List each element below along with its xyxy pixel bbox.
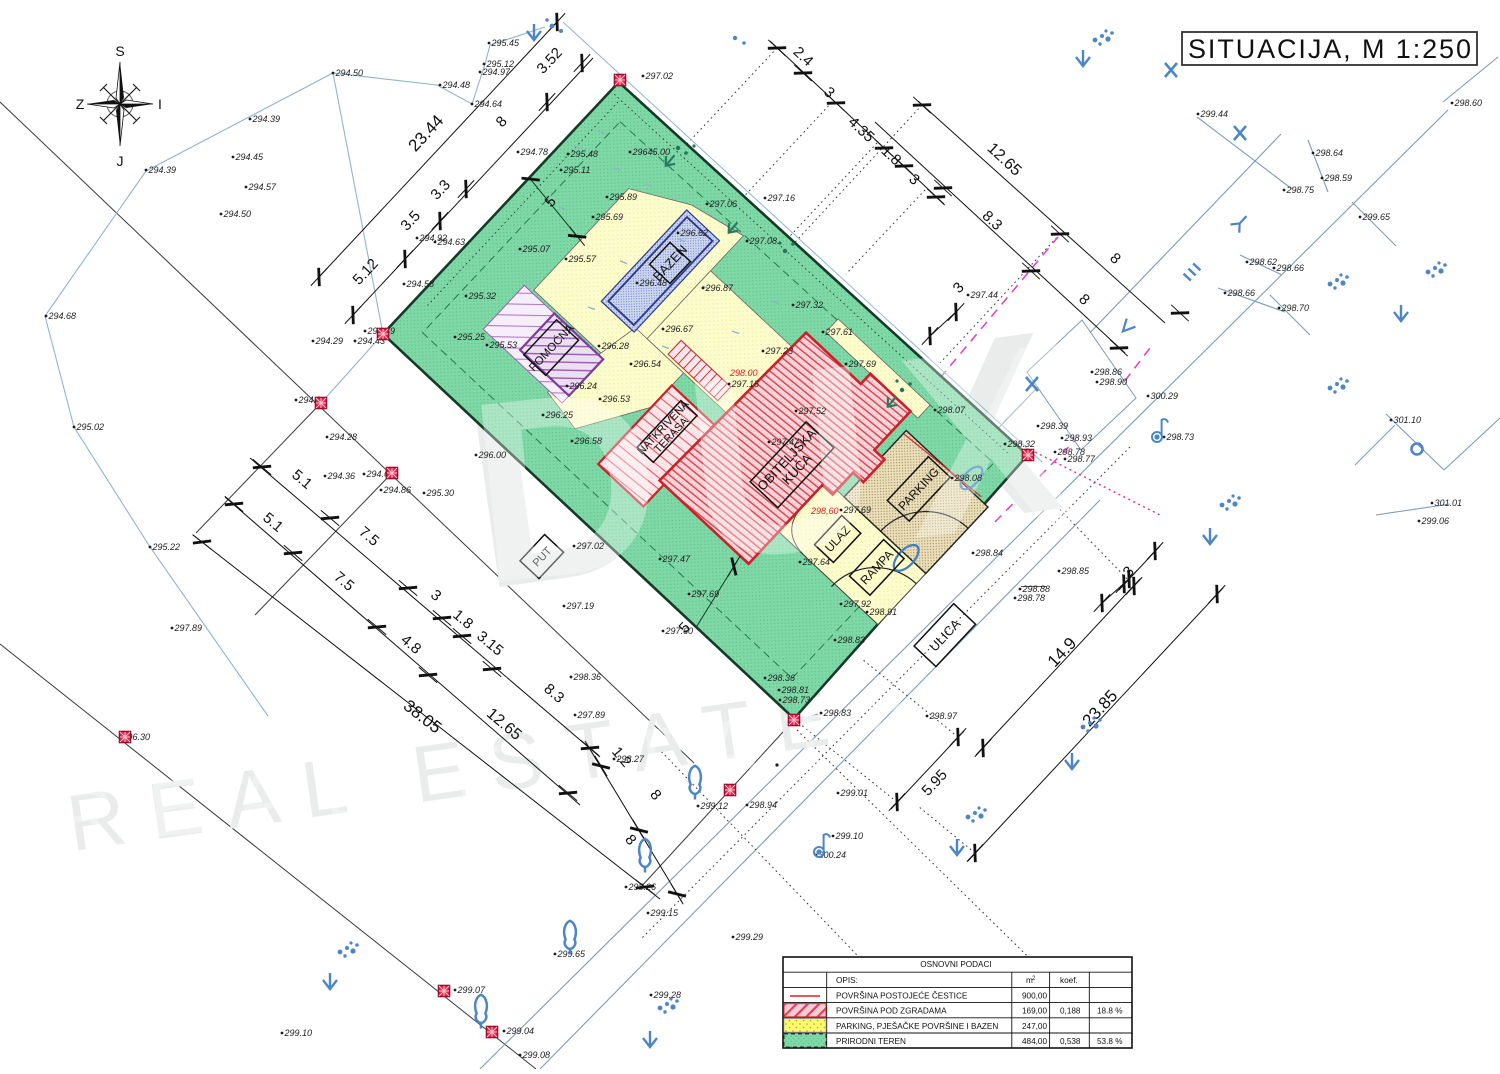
svg-text:296.58: 296.58 xyxy=(574,436,603,446)
svg-text:297.89: 297.89 xyxy=(577,710,606,720)
svg-text:298.93: 298.93 xyxy=(1064,433,1093,443)
svg-text:295.22: 295.22 xyxy=(152,542,181,552)
svg-text:295.25: 295.25 xyxy=(457,332,487,342)
svg-text:296.25: 296.25 xyxy=(545,410,575,420)
svg-text:298.60: 298.60 xyxy=(1454,98,1483,108)
svg-text:297.08: 297.08 xyxy=(749,236,778,246)
svg-text:296.28: 296.28 xyxy=(601,341,630,351)
svg-text:247,00: 247,00 xyxy=(1022,1022,1047,1031)
svg-text:298.75: 298.75 xyxy=(1286,185,1316,195)
svg-text:295.57: 295.57 xyxy=(568,254,598,264)
svg-text:299.15: 299.15 xyxy=(650,908,680,918)
svg-text:294.64: 294.64 xyxy=(474,99,503,109)
svg-text:296.54: 296.54 xyxy=(633,359,662,369)
svg-text:298.32: 298.32 xyxy=(1007,439,1036,449)
svg-text:297.47: 297.47 xyxy=(662,554,692,564)
svg-text:298.59: 298.59 xyxy=(1324,173,1353,183)
svg-text:PRIRODNI TEREN: PRIRODNI TEREN xyxy=(836,1037,906,1046)
svg-text:298.94: 298.94 xyxy=(749,800,778,810)
svg-text:301.01: 301.01 xyxy=(1435,498,1463,508)
svg-text:298.07: 298.07 xyxy=(937,405,967,415)
svg-text:298.91: 298.91 xyxy=(869,607,898,617)
svg-text:297.02: 297.02 xyxy=(645,71,674,81)
svg-text:300.29: 300.29 xyxy=(1151,391,1179,401)
svg-text:298.66: 298.66 xyxy=(1276,263,1305,273)
svg-text:297.89: 297.89 xyxy=(174,623,203,633)
svg-text:299.01: 299.01 xyxy=(840,788,869,798)
svg-text:297.32: 297.32 xyxy=(795,300,824,310)
svg-text:294.48: 294.48 xyxy=(442,80,471,90)
svg-text:298.84: 298.84 xyxy=(975,548,1004,558)
svg-text:298.36: 298.36 xyxy=(573,672,602,682)
svg-text:0,538: 0,538 xyxy=(1060,1037,1081,1046)
svg-text:294.36: 294.36 xyxy=(327,471,356,481)
svg-text:294.50: 294.50 xyxy=(335,68,364,78)
svg-text:294.39: 294.39 xyxy=(252,114,281,124)
svg-text:298.00: 298.00 xyxy=(729,368,758,378)
svg-text:298.66: 298.66 xyxy=(1227,288,1256,298)
svg-text:294.57: 294.57 xyxy=(248,182,278,192)
svg-text:295.02: 295.02 xyxy=(76,422,105,432)
svg-text:301.10: 301.10 xyxy=(1394,415,1422,425)
svg-text:299.12: 299.12 xyxy=(700,801,729,811)
svg-text:SITUACIJA, M 1:250: SITUACIJA, M 1:250 xyxy=(1188,34,1471,64)
svg-text:294.78: 294.78 xyxy=(520,147,549,157)
svg-text:297.02: 297.02 xyxy=(576,541,605,551)
svg-text:S: S xyxy=(115,43,124,59)
svg-text:296.87: 296.87 xyxy=(705,283,735,293)
svg-text:297.52: 297.52 xyxy=(798,406,827,416)
svg-text:299.06: 299.06 xyxy=(1421,516,1450,526)
svg-text:Z: Z xyxy=(76,96,85,112)
svg-text:298.62: 298.62 xyxy=(1249,257,1278,267)
svg-text:296.67: 296.67 xyxy=(665,324,695,334)
svg-text:299.04: 299.04 xyxy=(506,1026,535,1036)
svg-text:298.39: 298.39 xyxy=(1040,421,1069,431)
svg-text:900,00: 900,00 xyxy=(1022,992,1047,1001)
svg-text:295.30: 295.30 xyxy=(426,488,455,498)
svg-text:298.27: 298.27 xyxy=(616,754,646,764)
svg-text:295.48: 295.48 xyxy=(570,149,599,159)
svg-text:J: J xyxy=(117,153,124,169)
svg-text:294.97: 294.97 xyxy=(482,67,512,77)
svg-text:298.08: 298.08 xyxy=(954,473,983,483)
svg-text:296.53: 296.53 xyxy=(602,394,631,404)
svg-text:295.69: 295.69 xyxy=(595,212,624,222)
svg-text:294.63: 294.63 xyxy=(437,237,466,247)
svg-text:295.45: 295.45 xyxy=(491,38,521,48)
svg-text:294.68: 294.68 xyxy=(48,311,77,321)
svg-text:297.44: 297.44 xyxy=(970,290,999,300)
svg-text:I: I xyxy=(158,96,162,112)
svg-text:295.11: 295.11 xyxy=(563,165,591,175)
svg-text:299.10: 299.10 xyxy=(835,831,864,841)
svg-text:296.48: 296.48 xyxy=(639,278,668,288)
svg-text:53.8 %: 53.8 % xyxy=(1097,1037,1123,1046)
svg-text:297.64: 297.64 xyxy=(802,557,831,567)
svg-text:297.06: 297.06 xyxy=(709,199,738,209)
svg-text:OPIS:: OPIS: xyxy=(836,976,858,985)
svg-text:294.39: 294.39 xyxy=(148,165,177,175)
svg-text:295.89: 295.89 xyxy=(609,192,638,202)
svg-text:297.92: 297.92 xyxy=(843,599,872,609)
svg-text:296.24: 296.24 xyxy=(569,381,598,391)
svg-text:484,00: 484,00 xyxy=(1022,1037,1047,1046)
svg-text:298.70: 298.70 xyxy=(1281,303,1310,313)
svg-text:18.8 %: 18.8 % xyxy=(1097,1007,1123,1016)
svg-text:295.32: 295.32 xyxy=(468,291,497,301)
svg-text:298,60: 298,60 xyxy=(810,506,839,516)
svg-text:294.86: 294.86 xyxy=(383,485,412,495)
svg-text:299.10: 299.10 xyxy=(284,1028,313,1038)
svg-text:298.77: 298.77 xyxy=(1067,454,1097,464)
svg-text:297.19: 297.19 xyxy=(566,601,595,611)
svg-text:POVRŠINA POD ZGRADAMA: POVRŠINA POD ZGRADAMA xyxy=(836,1006,947,1016)
svg-text:297.69: 297.69 xyxy=(843,505,872,515)
svg-text:294.45: 294.45 xyxy=(235,152,265,162)
svg-text:298.73: 298.73 xyxy=(1166,432,1195,442)
svg-text:297.69: 297.69 xyxy=(848,359,877,369)
svg-text:OSNOVNI PODACI: OSNOVNI PODACI xyxy=(920,960,991,969)
svg-text:299.44: 299.44 xyxy=(1200,109,1229,119)
svg-text:297.60: 297.60 xyxy=(665,626,694,636)
svg-text:296.00: 296.00 xyxy=(478,450,507,460)
svg-text:299.29: 299.29 xyxy=(735,932,764,942)
svg-text:298.90: 298.90 xyxy=(1099,377,1128,387)
svg-text:298.36: 298.36 xyxy=(767,673,796,683)
svg-text:299.28: 299.28 xyxy=(653,990,682,1000)
svg-text:295.07: 295.07 xyxy=(522,244,552,254)
svg-text:169,00: 169,00 xyxy=(1022,1007,1047,1016)
svg-text:299.65: 299.65 xyxy=(557,949,587,959)
svg-text:296.62: 296.62 xyxy=(680,228,709,238)
svg-text:297.15: 297.15 xyxy=(731,379,761,389)
svg-text:297.23: 297.23 xyxy=(765,346,794,356)
svg-text:koef.: koef. xyxy=(1060,976,1078,985)
svg-text:297.61: 297.61 xyxy=(825,327,854,337)
svg-text:298.83: 298.83 xyxy=(837,635,866,645)
svg-text:295.53: 295.53 xyxy=(489,340,518,350)
svg-text:298.26: 298.26 xyxy=(628,882,657,892)
svg-text:298.73: 298.73 xyxy=(782,695,811,705)
svg-text:297.69: 297.69 xyxy=(691,589,720,599)
svg-text:298.86: 298.86 xyxy=(1094,367,1123,377)
svg-text:0,188: 0,188 xyxy=(1060,1007,1081,1016)
svg-text:298.64: 298.64 xyxy=(1315,148,1344,158)
svg-text:294.28: 294.28 xyxy=(329,432,358,442)
svg-text:298.78: 298.78 xyxy=(1017,593,1046,603)
svg-text:299.65: 299.65 xyxy=(1362,212,1392,222)
svg-text:298.97: 298.97 xyxy=(929,711,959,721)
svg-text:297.47: 297.47 xyxy=(771,437,801,447)
svg-text:294.50: 294.50 xyxy=(223,209,252,219)
svg-text:POVRŠINA POSTOJEĆE ČESTICE: POVRŠINA POSTOJEĆE ČESTICE xyxy=(836,991,968,1001)
svg-text:PARKING, PJEŠAČKE POVRŠINE I B: PARKING, PJEŠAČKE POVRŠINE I BAZEN xyxy=(836,1021,998,1031)
svg-text:299.07: 299.07 xyxy=(457,985,487,995)
svg-text:29645.00: 29645.00 xyxy=(632,147,671,157)
svg-text:294.29: 294.29 xyxy=(315,336,344,346)
svg-text:294.58: 294.58 xyxy=(406,279,435,289)
svg-text:298.83: 298.83 xyxy=(823,708,852,718)
svg-text:299.08: 299.08 xyxy=(522,1050,551,1060)
svg-text:298.85: 298.85 xyxy=(1061,566,1091,576)
svg-text:298.81: 298.81 xyxy=(781,685,810,695)
svg-text:297.16: 297.16 xyxy=(767,193,796,203)
